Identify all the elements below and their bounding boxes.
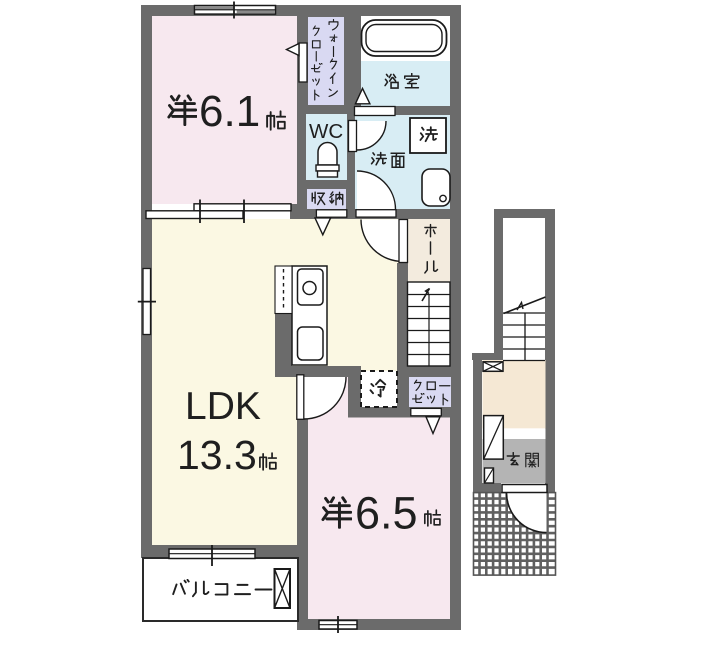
- svg-text:6.1: 6.1: [199, 87, 260, 136]
- svg-text:13.3: 13.3: [177, 432, 257, 478]
- svg-text:6.5: 6.5: [355, 488, 418, 539]
- svg-text:LDK: LDK: [185, 385, 261, 428]
- svg-text:WC: WC: [309, 120, 343, 143]
